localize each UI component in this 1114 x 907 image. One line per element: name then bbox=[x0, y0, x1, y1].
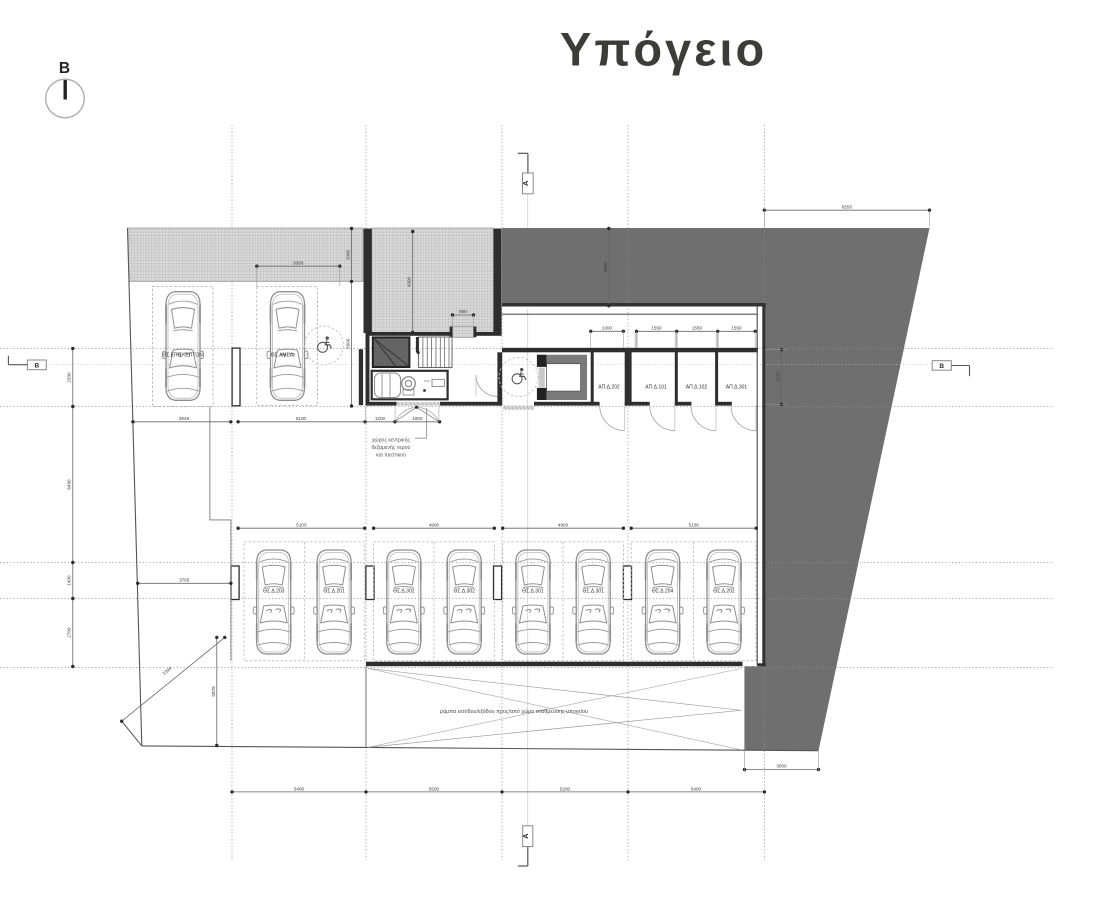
svg-text:ΘΣ.Δ.202: ΘΣ.Δ.202 bbox=[713, 589, 735, 595]
svg-text:ΑΠ.Δ.101: ΑΠ.Δ.101 bbox=[645, 385, 667, 391]
svg-text:1800: 1800 bbox=[412, 416, 423, 421]
svg-text:και πιεστικού: και πιεστικού bbox=[376, 453, 406, 459]
svg-text:ΘΣ.Δ.301: ΘΣ.Δ.301 bbox=[522, 589, 544, 595]
svg-text:4900: 4900 bbox=[558, 522, 569, 527]
svg-text:A: A bbox=[521, 180, 530, 186]
svg-text:δεξαμενής νερού: δεξαμενής νερού bbox=[372, 444, 411, 451]
svg-text:4300: 4300 bbox=[407, 276, 412, 287]
svg-text:1300: 1300 bbox=[602, 326, 613, 331]
svg-text:5200: 5200 bbox=[560, 786, 571, 791]
svg-text:900: 900 bbox=[459, 309, 467, 314]
svg-text:ΘΣ.Δ.302: ΘΣ.Δ.302 bbox=[453, 589, 475, 595]
svg-text:ΘΣ.Δ.204: ΘΣ.Δ.204 bbox=[652, 589, 674, 595]
svg-text:6490: 6490 bbox=[67, 479, 72, 490]
svg-text:3300: 3300 bbox=[293, 260, 304, 265]
svg-text:B: B bbox=[939, 363, 944, 370]
svg-text:ΑΠ.Δ.202: ΑΠ.Δ.202 bbox=[598, 385, 620, 391]
svg-text:ΑΠ.Δ.102: ΑΠ.Δ.102 bbox=[686, 385, 708, 391]
svg-text:1550: 1550 bbox=[731, 326, 742, 331]
svg-text:A: A bbox=[521, 833, 530, 839]
svg-text:ΑΠ.Δ.301: ΑΠ.Δ.301 bbox=[726, 385, 748, 391]
svg-text:ΘΣ.Δ.201: ΘΣ.Δ.201 bbox=[323, 589, 345, 595]
svg-text:5100: 5100 bbox=[296, 416, 307, 421]
svg-text:2100: 2100 bbox=[776, 372, 781, 383]
svg-text:3765: 3765 bbox=[179, 578, 190, 583]
svg-text:1550: 1550 bbox=[692, 326, 703, 331]
svg-text:ράμπα εισόδου/εξόδου προς/από: ράμπα εισόδου/εξόδου προς/από χώρο στάθμ… bbox=[440, 708, 588, 715]
svg-text:ΘΣ.ΑΜΕΑ: ΘΣ.ΑΜΕΑ bbox=[271, 353, 294, 359]
svg-text:ΘΣ.Δ.203: ΘΣ.Δ.203 bbox=[263, 589, 285, 595]
svg-text:B: B bbox=[34, 362, 39, 369]
svg-text:5400: 5400 bbox=[294, 786, 305, 791]
svg-text:2330: 2330 bbox=[67, 372, 72, 383]
svg-text:3949: 3949 bbox=[179, 416, 190, 421]
svg-text:Υπόγειο: Υπόγειο bbox=[560, 23, 767, 76]
svg-text:6550: 6550 bbox=[842, 204, 853, 209]
svg-text:5100: 5100 bbox=[296, 522, 307, 527]
svg-text:1550: 1550 bbox=[651, 326, 662, 331]
svg-text:ΘΣ.Δ.301: ΘΣ.Δ.301 bbox=[582, 589, 604, 595]
svg-text:5000: 5000 bbox=[345, 338, 350, 349]
svg-text:ΘΣ.ΕΠΙΣΚΕΠΤΩΝ: ΘΣ.ΕΠΙΣΚΕΠΤΩΝ bbox=[162, 353, 203, 359]
svg-text:B: B bbox=[59, 60, 70, 77]
svg-text:1400: 1400 bbox=[67, 575, 72, 586]
svg-text:5100: 5100 bbox=[689, 522, 700, 527]
svg-text:2700: 2700 bbox=[67, 627, 72, 638]
svg-text:4900: 4900 bbox=[429, 522, 440, 527]
svg-text:3000: 3000 bbox=[603, 262, 608, 273]
svg-text:χώρος κεντρικής: χώρος κεντρικής bbox=[372, 437, 411, 444]
svg-text:5878: 5878 bbox=[211, 686, 216, 697]
svg-text:3000: 3000 bbox=[776, 764, 787, 769]
svg-text:ΘΣ.Δ.302: ΘΣ.Δ.302 bbox=[393, 589, 415, 595]
svg-text:5400: 5400 bbox=[691, 786, 702, 791]
svg-text:1200: 1200 bbox=[375, 416, 386, 421]
svg-text:5500: 5500 bbox=[429, 786, 440, 791]
svg-text:2000: 2000 bbox=[345, 249, 350, 260]
